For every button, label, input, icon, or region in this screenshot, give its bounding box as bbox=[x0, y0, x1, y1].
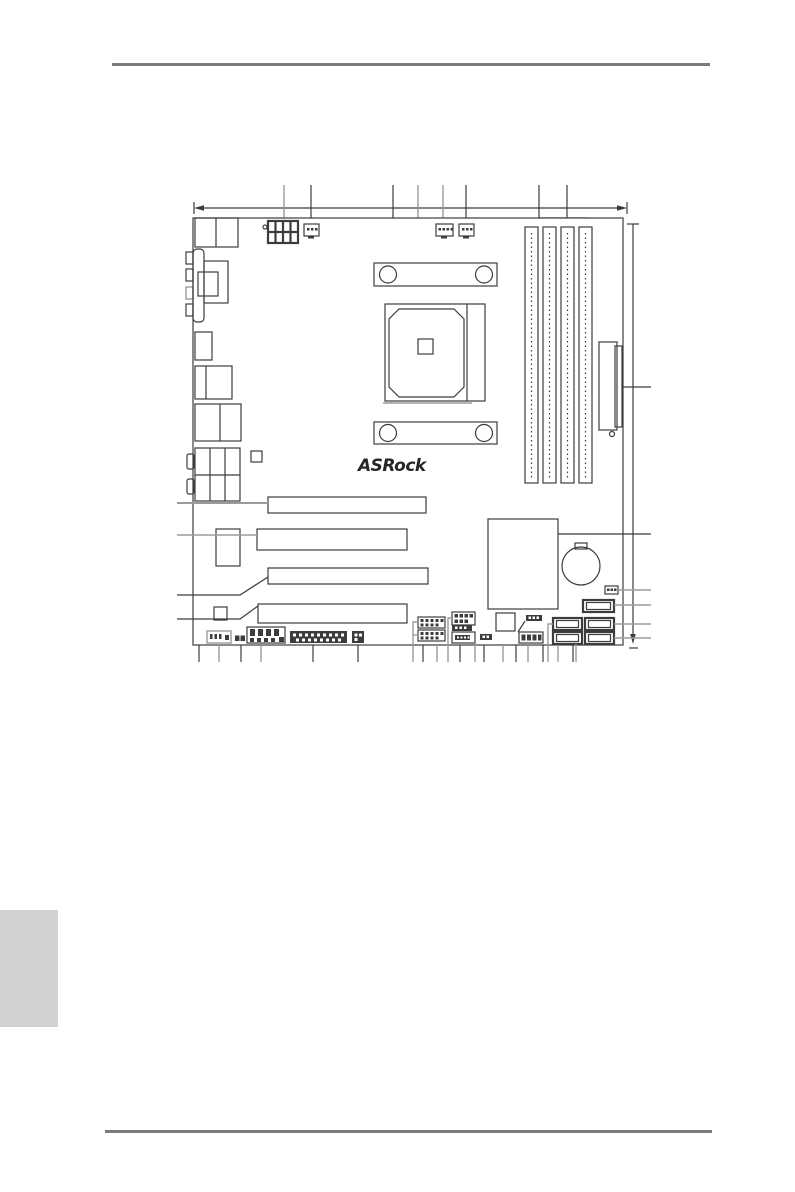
small-header-2x2 bbox=[352, 631, 364, 643]
pcie-x16-slot-2 bbox=[268, 568, 428, 584]
pci-slot-1 bbox=[257, 529, 407, 550]
clear-cmos-jumper bbox=[480, 634, 492, 640]
asrock-logo: ASRock bbox=[356, 456, 428, 476]
system-panel-header bbox=[290, 631, 347, 643]
front-panel-header-mid bbox=[452, 625, 472, 631]
motherboard-layout-diagram: ASRock bbox=[0, 0, 795, 1192]
cpu-socket bbox=[383, 304, 485, 403]
manual-page: ASRock bbox=[0, 0, 795, 1192]
pcie-x16-slot-1 bbox=[268, 497, 426, 513]
pci-slot-2 bbox=[258, 604, 407, 623]
